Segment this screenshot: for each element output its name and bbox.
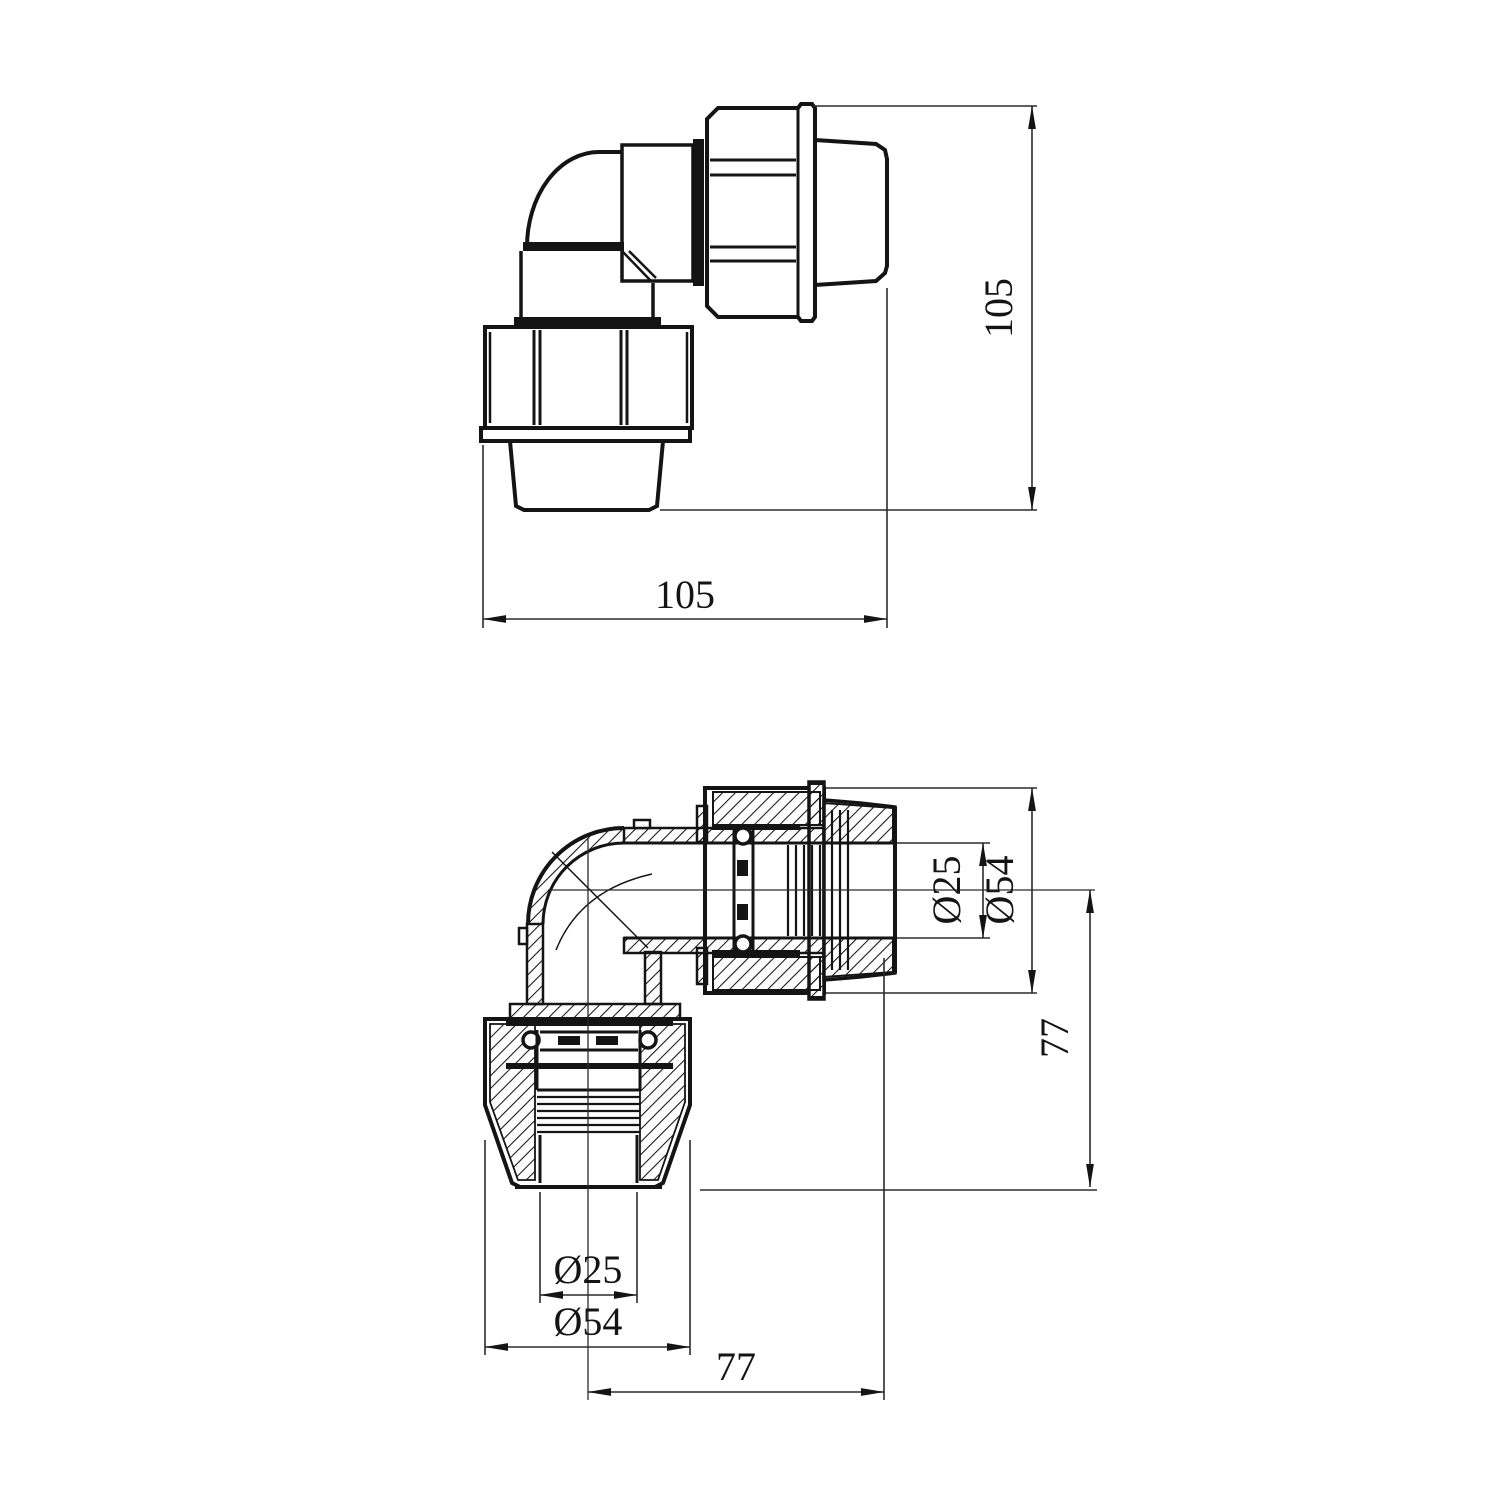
dim-label-top-height: 105 (976, 278, 1021, 338)
dim-label-section-width: 77 (716, 1344, 756, 1389)
seal-circle (640, 1032, 656, 1048)
dim-label-top-width: 105 (655, 572, 715, 617)
dim-label-bore-right: Ø25 (924, 856, 969, 925)
dim-label-bore-bottom: Ø25 (554, 1247, 623, 1292)
top-view-bottom-nut (481, 327, 692, 441)
dim-section-bore-bottom: Ø25 (540, 1247, 637, 1295)
dim-label-od-right: Ø54 (977, 856, 1022, 925)
seal-circle (735, 936, 751, 952)
gasket-band-vertical (693, 139, 704, 286)
drawing-canvas: 105 105 (0, 0, 1500, 1500)
gasket-band-upper (523, 242, 624, 251)
dim-label-od-bottom: Ø54 (554, 1299, 623, 1344)
top-view-right-nut (707, 104, 815, 321)
dim-label-section-height: 77 (1032, 1018, 1077, 1058)
top-view-bottom-male-end (510, 441, 663, 510)
top-view-right-male-end (815, 140, 887, 285)
gasket-band-lower (514, 317, 661, 326)
technical-drawing-page: 105 105 (0, 0, 1500, 1500)
seal-circle (735, 828, 751, 844)
